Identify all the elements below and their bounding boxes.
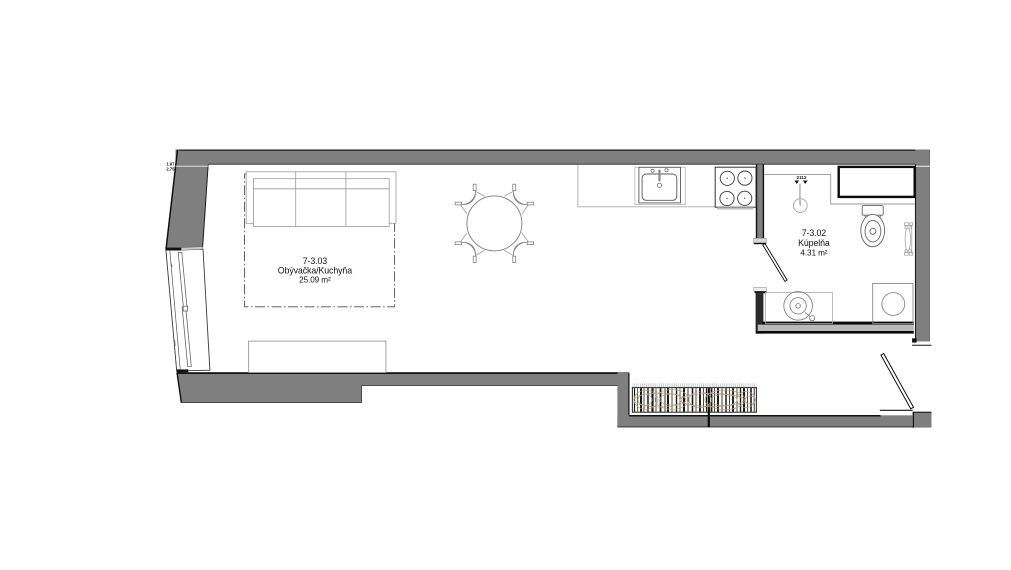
svg-text:4.31 m²: 4.31 m² <box>800 249 827 258</box>
svg-text:2112: 2112 <box>797 175 807 180</box>
svg-text:Obývačka/Kuchyňa: Obývačka/Kuchyňa <box>278 266 352 276</box>
svg-text:25.09 m²: 25.09 m² <box>299 275 331 284</box>
svg-text:7-3.03: 7-3.03 <box>303 256 328 266</box>
svg-text:7-3.02: 7-3.02 <box>802 228 827 238</box>
svg-text:Kúpelňa: Kúpelňa <box>798 238 830 248</box>
svg-text:2.75: 2.75 <box>166 166 175 171</box>
